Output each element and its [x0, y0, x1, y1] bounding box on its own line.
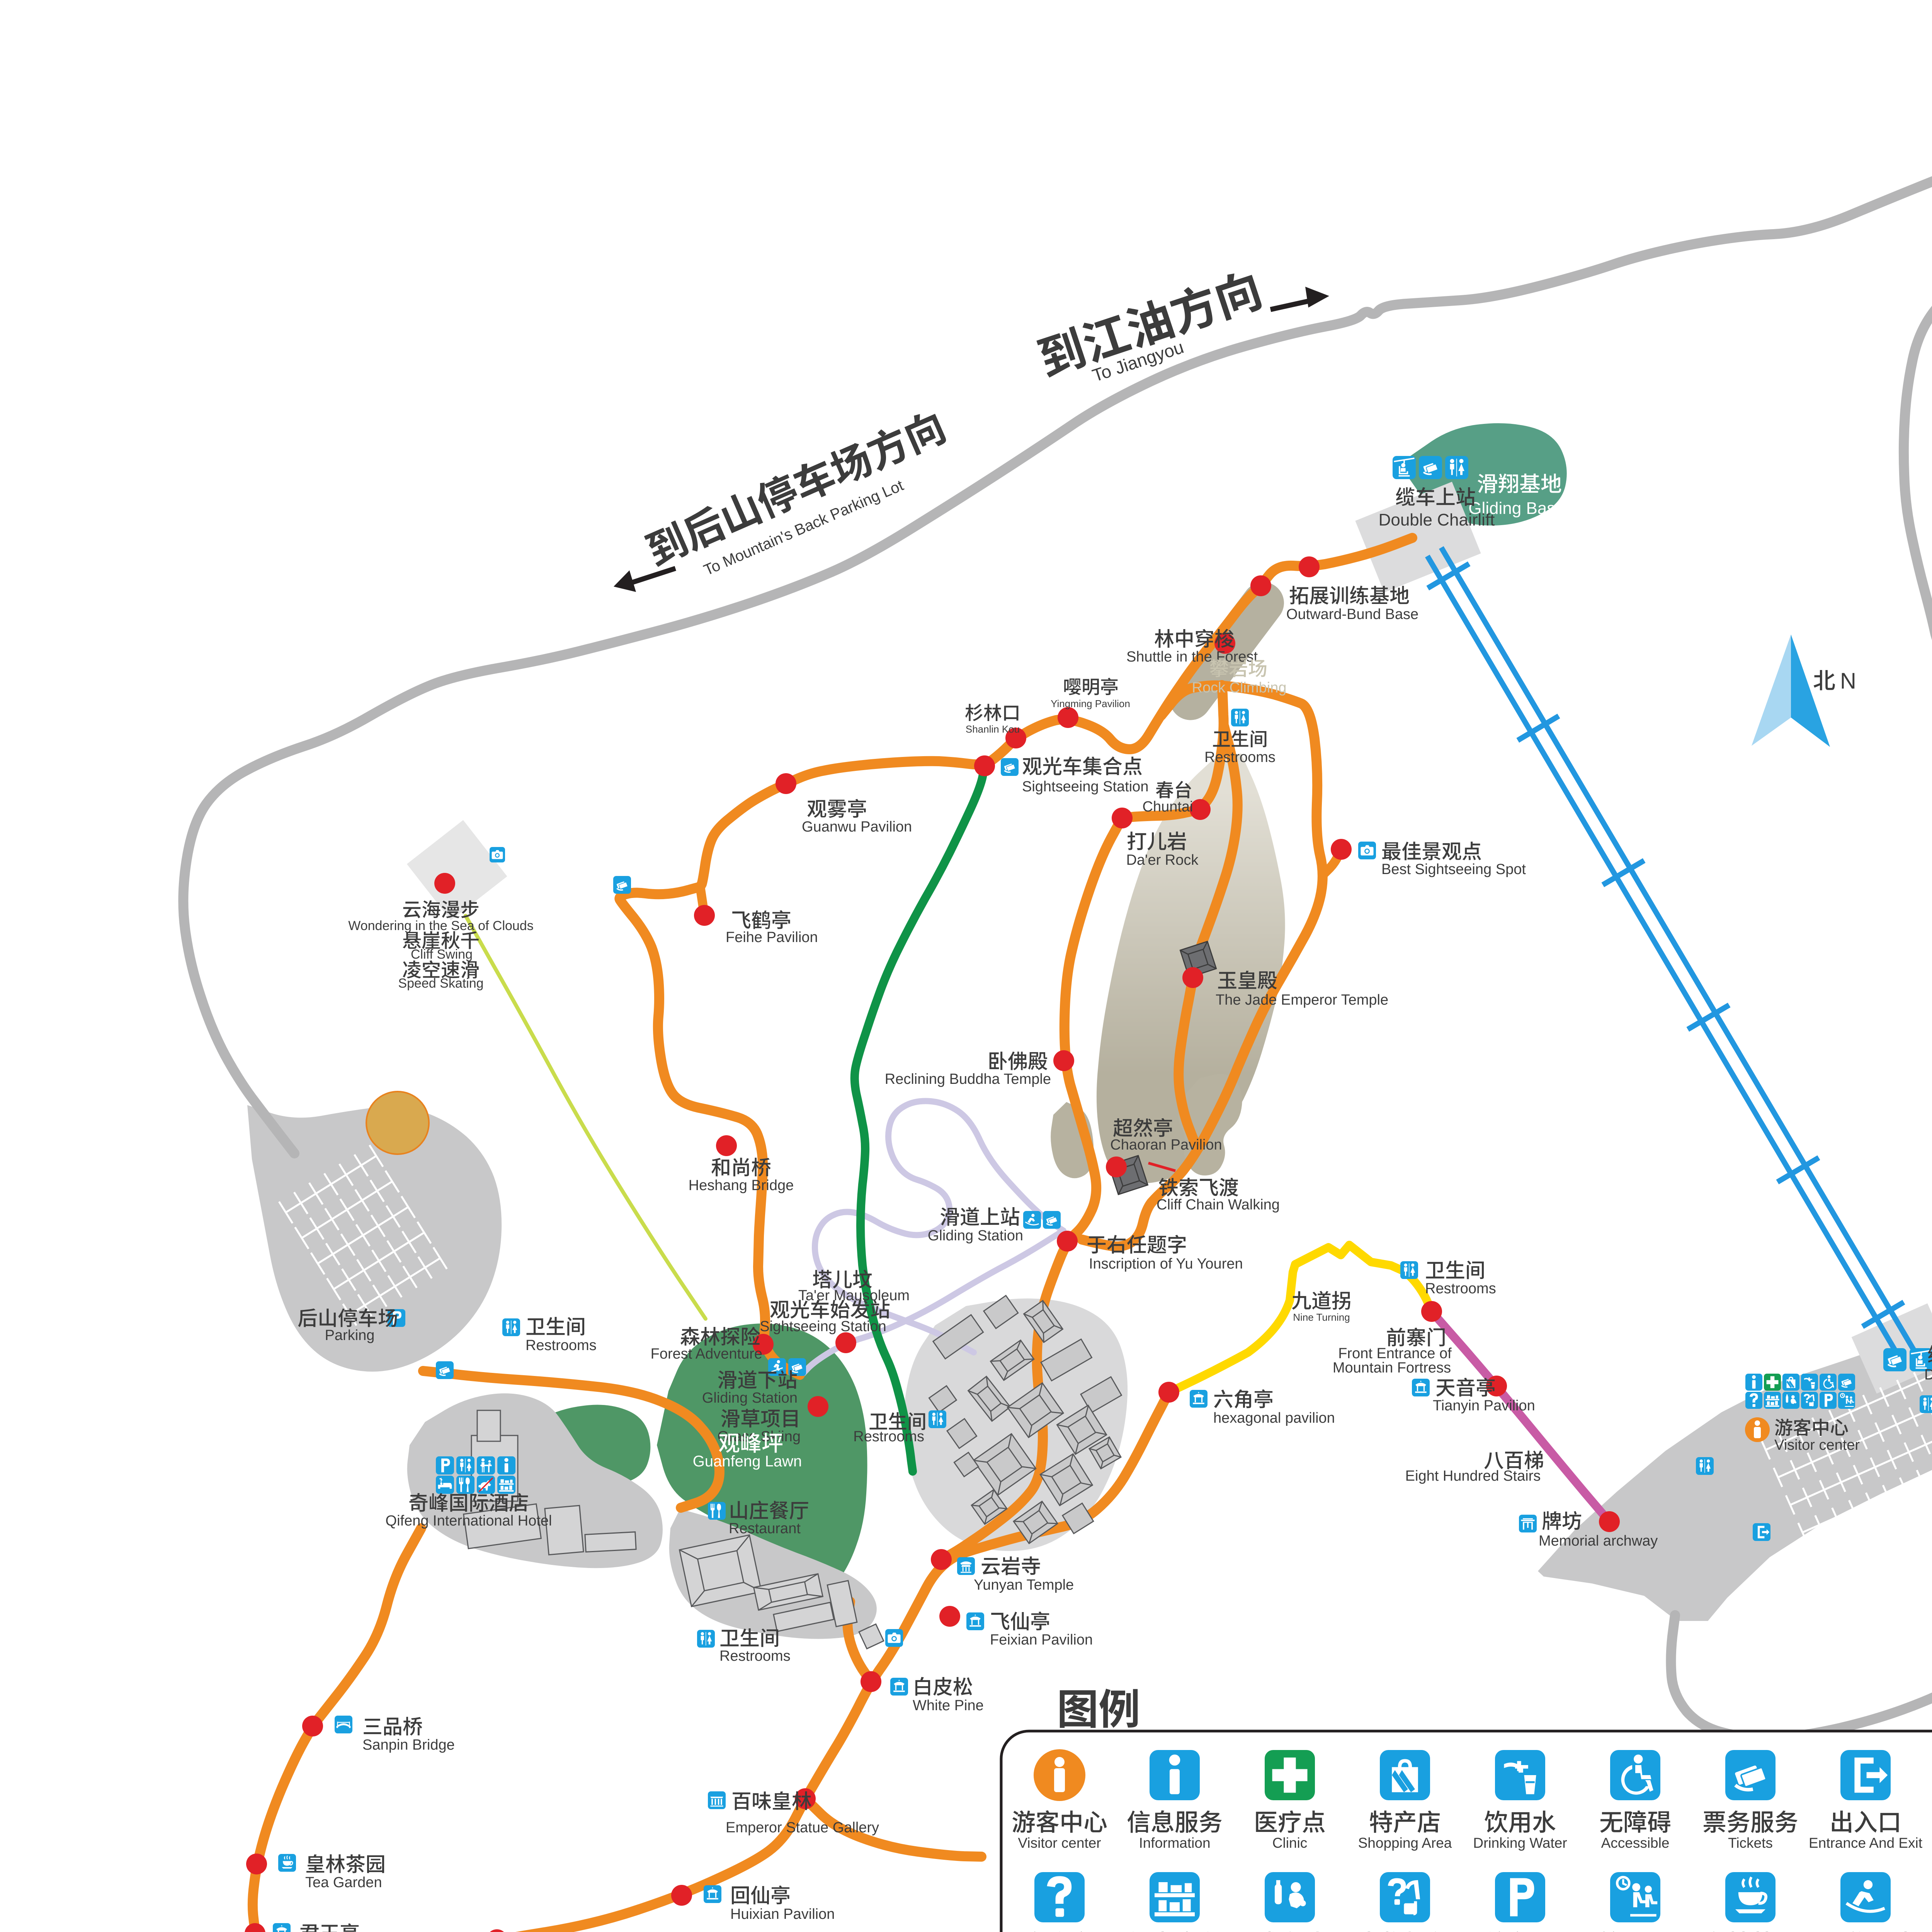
svg-text:Restrooms: Restrooms: [1204, 749, 1276, 765]
svg-text:Ta'er Mausoleum: Ta'er Mausoleum: [798, 1287, 910, 1304]
svg-text:Inscription of Yu Youren: Inscription of Yu Youren: [1089, 1256, 1243, 1272]
svg-text:Restaurant: Restaurant: [729, 1520, 801, 1537]
svg-text:Outward-Bund Base: Outward-Bund Base: [1286, 606, 1418, 622]
svg-text:Chaoran Pavilion: Chaoran Pavilion: [1110, 1137, 1222, 1153]
svg-text:Tickets: Tickets: [1728, 1835, 1773, 1851]
svg-text:Visitor center: Visitor center: [1018, 1835, 1101, 1851]
svg-text:Reclining Buddha Temple: Reclining Buddha Temple: [885, 1071, 1051, 1087]
svg-text:Shanlin Kou: Shanlin Kou: [966, 723, 1020, 735]
svg-text:Memorial archway: Memorial archway: [1539, 1533, 1658, 1549]
svg-text:Parking: Parking: [325, 1327, 375, 1344]
svg-text:Restrooms: Restrooms: [853, 1429, 924, 1445]
svg-text:Wondering in the Sea of Clouds: Wondering in the Sea of Clouds: [348, 918, 533, 933]
svg-text:Gliding Station: Gliding Station: [702, 1390, 798, 1406]
svg-text:Double Chairlift: Double Chairlift: [1379, 510, 1495, 529]
svg-text:Guanfeng Lawn: Guanfeng Lawn: [693, 1453, 802, 1470]
svg-text:Clinic: Clinic: [1272, 1835, 1307, 1851]
svg-text:N: N: [1840, 668, 1856, 694]
svg-text:Emperor Statue Gallery: Emperor Statue Gallery: [726, 1820, 879, 1836]
svg-text:Rock Climbing: Rock Climbing: [1192, 680, 1287, 696]
svg-text:Tianyin Pavilion: Tianyin Pavilion: [1433, 1398, 1535, 1414]
svg-text:Accessible: Accessible: [1601, 1835, 1670, 1851]
svg-text:Yunyan Temple: Yunyan Temple: [974, 1577, 1074, 1593]
svg-text:Heshang Bridge: Heshang Bridge: [689, 1177, 794, 1194]
svg-text:Restrooms: Restrooms: [526, 1337, 597, 1354]
svg-text:Restrooms: Restrooms: [1425, 1281, 1496, 1297]
svg-text:Feixian Pavilion: Feixian Pavilion: [990, 1632, 1093, 1648]
svg-text:White Pine: White Pine: [913, 1697, 984, 1714]
svg-text:Tea Garden: Tea Garden: [305, 1874, 382, 1891]
svg-text:The Jade Emperor Temple: The Jade Emperor Temple: [1216, 992, 1388, 1008]
svg-text:Huixian Pavilion: Huixian Pavilion: [730, 1906, 835, 1922]
svg-text:Visitor center: Visitor center: [1774, 1437, 1860, 1453]
svg-text:Nine Turning: Nine Turning: [1293, 1311, 1350, 1323]
svg-text:Feihe Pavilion: Feihe Pavilion: [726, 929, 818, 946]
svg-text:Eight Hundred Stairs: Eight Hundred Stairs: [1405, 1468, 1541, 1484]
svg-text:Information: Information: [1139, 1835, 1210, 1851]
svg-text:hexagonal pavilion: hexagonal pavilion: [1213, 1410, 1335, 1426]
svg-text:Speed Skating: Speed Skating: [398, 976, 483, 991]
svg-text:Forest Adventure: Forest Adventure: [651, 1346, 762, 1362]
svg-text:Cliff Swing: Cliff Swing: [411, 947, 473, 962]
svg-text:Sightseeing Station: Sightseeing Station: [760, 1318, 886, 1335]
svg-text:Gliding Station: Gliding Station: [928, 1228, 1023, 1244]
svg-text:Double Chairlift: Double Chairlift: [1924, 1367, 1932, 1383]
svg-text:Chuntai: Chuntai: [1143, 799, 1193, 815]
svg-text:Yingming Pavilion: Yingming Pavilion: [1051, 698, 1130, 709]
svg-text:Best Sightseeing Spot: Best Sightseeing Spot: [1381, 861, 1526, 878]
svg-text:Cliff Chain Walking: Cliff Chain Walking: [1156, 1197, 1280, 1213]
svg-text:Da'er Rock: Da'er Rock: [1126, 852, 1199, 868]
svg-text:Restrooms: Restrooms: [719, 1648, 791, 1664]
svg-text:Front Entrance of: Front Entrance of: [1338, 1345, 1452, 1362]
svg-text:Drinking Water: Drinking Water: [1473, 1835, 1567, 1851]
svg-text:Shopping Area: Shopping Area: [1358, 1835, 1452, 1851]
svg-text:Sightseeing Station: Sightseeing Station: [1022, 779, 1148, 795]
svg-text:Guanwu Pavilion: Guanwu Pavilion: [802, 819, 912, 835]
svg-text:Mountain Fortress: Mountain Fortress: [1333, 1360, 1451, 1376]
svg-text:Qifeng International Hotel: Qifeng International Hotel: [386, 1513, 552, 1529]
svg-text:Entrance And Exit: Entrance And Exit: [1809, 1835, 1923, 1851]
svg-text:Sanpin Bridge: Sanpin Bridge: [362, 1737, 455, 1753]
